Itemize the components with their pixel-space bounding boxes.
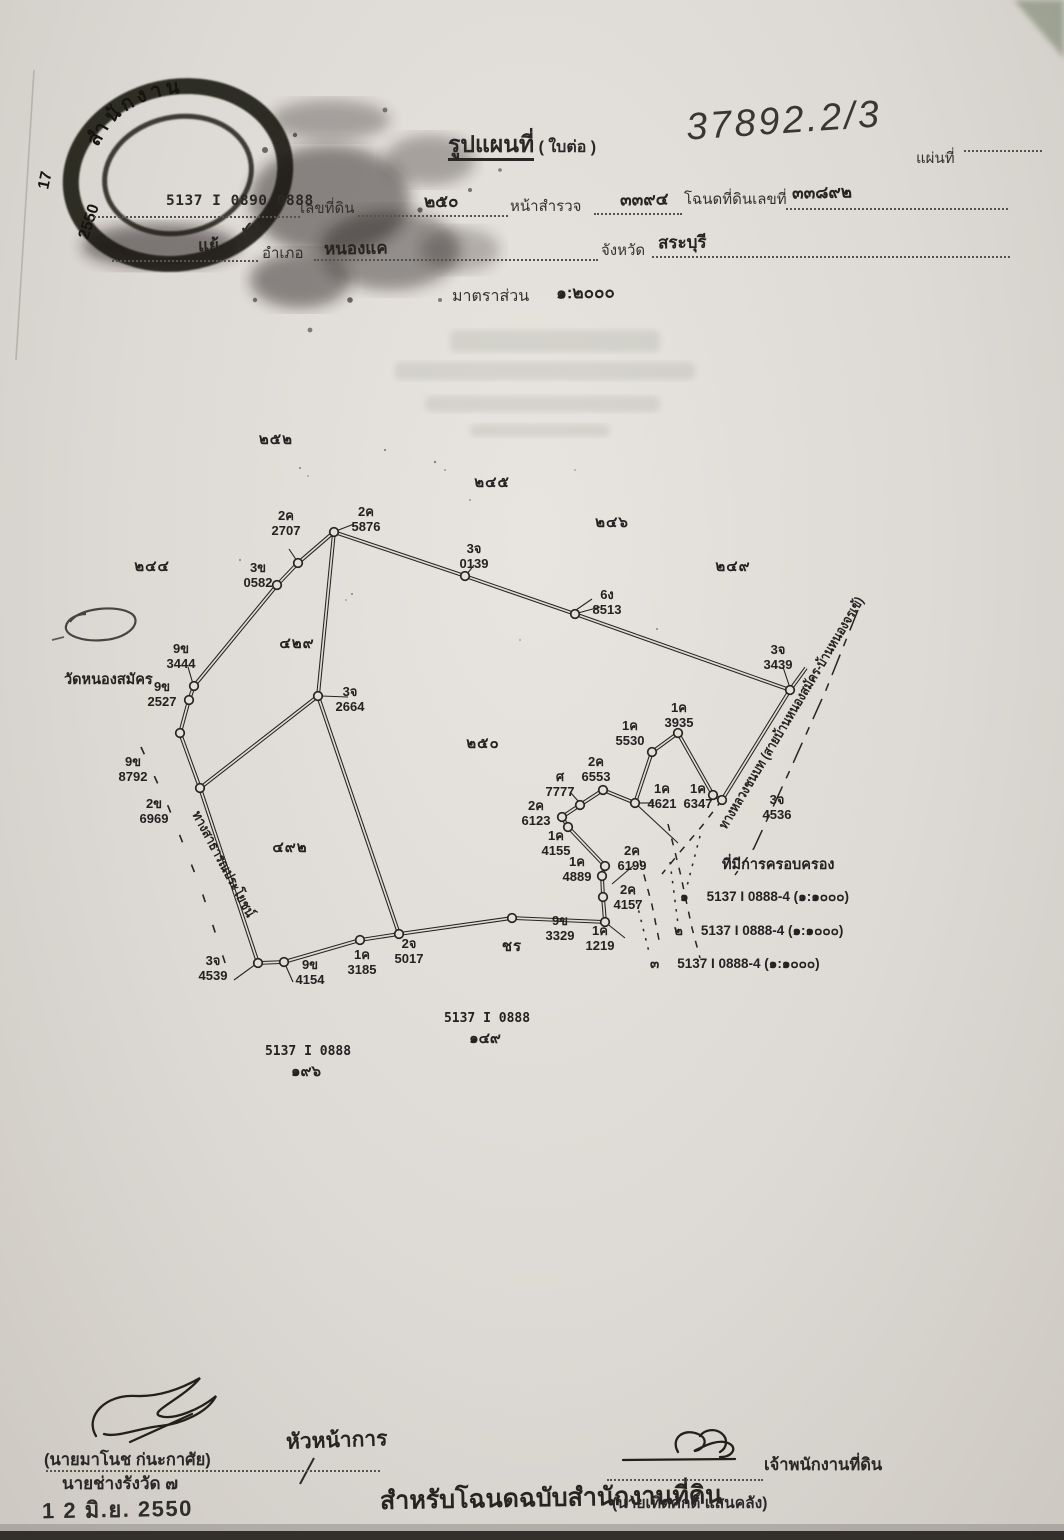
survey-point-code: 1ค (354, 947, 370, 962)
survey-point-code: 1ค (548, 828, 564, 843)
scale-value: ๑:๒๐๐๐ (556, 278, 615, 306)
survey-point-marker (280, 958, 289, 967)
title-text: รูปแผนที่ (448, 131, 534, 161)
survey-point-code: 1ค (671, 700, 687, 715)
survey-page-value: ๓๓๙๔ (620, 186, 669, 214)
survey-point-marker (648, 748, 657, 757)
leader-line (234, 964, 256, 980)
survey-point-code: 2ค (624, 843, 640, 858)
claim-item-number: ๒ (674, 923, 683, 938)
survey-point-number: 6969 (140, 811, 169, 826)
survey-point-code: 1ค (654, 781, 670, 796)
claim-item-text: 5137 I 0888-4 (๑:๑๐๐๐) (677, 956, 819, 971)
survey-point-number: 6199 (618, 858, 647, 873)
dotted-rule (112, 260, 258, 262)
survey-point-code: 6ง (600, 587, 614, 602)
claim-list-item: ๒5137 I 0888-4 (๑:๑๐๐๐) (674, 923, 843, 938)
parcel-number-label: ชร (502, 938, 522, 955)
survey-point-number: 0582 (244, 575, 273, 590)
dotted-rule (964, 150, 1042, 152)
survey-point-number: 8792 (119, 769, 148, 784)
claim-item-number: ๓ (650, 956, 659, 971)
survey-point-number: 4536 (763, 807, 792, 822)
survey-point-code: 2ค (620, 882, 636, 897)
page-title: รูปแผนที่ ( ใบต่อ ) (448, 127, 596, 163)
survey-point-number: 6347 (684, 796, 713, 811)
dotted-rule (652, 256, 1010, 258)
survey-point-number: 5530 (616, 733, 645, 748)
survey-point-marker (718, 796, 727, 805)
survey-point-marker (356, 936, 365, 945)
parcel-number-label: ๒๕๐ (466, 735, 499, 752)
survey-point-number: 6553 (582, 769, 611, 784)
survey-point-number: 3185 (348, 962, 377, 977)
rural-road-label: ทางหลวงชนบท (สายบ้านหนองสมัคร-บ้านหนองจร… (716, 594, 867, 831)
survey-point-marker (571, 610, 580, 619)
survey-point-code: 9ข (302, 957, 318, 972)
survey-point-code: 3จ (206, 953, 221, 968)
survey-point-marker (330, 528, 339, 537)
survey-point-marker (314, 692, 323, 701)
scale-label: มาตราส่วน (452, 284, 529, 309)
survey-point-number: 4889 (563, 869, 592, 884)
survey-point-marker (190, 682, 199, 691)
survey-point-marker (185, 696, 194, 705)
survey-point-code: 1ค (569, 854, 585, 869)
district-label: อำเภอ (262, 241, 303, 265)
survey-point-code: 9ข (552, 913, 568, 928)
province-value: สระบุรี (658, 229, 707, 257)
boundary-line-core (562, 733, 722, 922)
boundary-line-core (200, 532, 334, 788)
survey-point-marker (294, 559, 303, 568)
survey-point-code: 3จ (770, 792, 785, 807)
leader-line (576, 599, 592, 610)
province-label: จังหวัด (601, 238, 645, 262)
survey-point-code: 1ค (592, 923, 608, 938)
survey-point-number: 4157 (614, 897, 643, 912)
parcel-number-label: ๒๔๔ (134, 558, 170, 575)
claim-list-item: ๓5137 I 0888-4 (๑:๑๐๐๐) (650, 956, 820, 971)
scanned-survey-document: สำนักงาน 2550 17 (0, 0, 1064, 1540)
survey-point-code: 2ค (278, 508, 294, 523)
dashed-boundary-line (735, 610, 858, 875)
survey-page-label: หน้าสำรวจ (510, 194, 581, 218)
claim-item-text: 5137 I 0888-4 (๑:๑๐๐๐) (707, 889, 849, 904)
survey-point-number: 3329 (546, 928, 575, 943)
deed-no-value: ๓๓๘๙๒ (792, 178, 852, 206)
approver-role-handwritten: หัวหน้าการ (285, 1422, 388, 1459)
boundary-line (562, 733, 722, 922)
sheet-reference-code: 5137 I 0888 (265, 1044, 351, 1059)
survey-point-number: 2527 (148, 694, 177, 709)
district-value: หนองแค (324, 234, 388, 262)
survey-point-marker (176, 729, 185, 738)
subdistrict-value: แย้ (198, 232, 219, 259)
dotted-rule (94, 216, 300, 218)
survey-point-number: 6123 (522, 813, 551, 828)
survey-point-code: 3จ (467, 541, 482, 556)
parcel-number-label: ๒๕๒ (259, 431, 293, 448)
survey-point-code: ศ (556, 769, 565, 784)
survey-point-number: 2707 (272, 523, 301, 538)
dotted-rule (594, 213, 682, 215)
dotted-rule (786, 208, 1008, 210)
survey-point-number: 8513 (593, 602, 622, 617)
survey-point-marker (598, 872, 607, 881)
survey-point-marker (558, 813, 567, 822)
temple-label: วัดหนองสมัคร (64, 672, 153, 688)
survey-point-code: 2จ (402, 936, 417, 951)
boundary-line-core (180, 532, 334, 963)
survey-point-code: 2ค (528, 798, 544, 813)
claim-item-text: 5137 I 0888-4 (๑:๑๐๐๐) (701, 923, 843, 938)
sheet-reference-number: ๑๙๖ (291, 1063, 322, 1080)
survey-point-marker (273, 581, 282, 590)
date-stamp: 1 2 มิ.ย. 2550 (42, 1491, 193, 1529)
deed-no-label: โฉนดที่ดินเลขที่ (684, 187, 787, 211)
survey-point-number: 3935 (665, 715, 694, 730)
parcel-no-value: ๒๕๐ (424, 188, 459, 216)
survey-point-code: 3จ (771, 642, 786, 657)
survey-point-code: 2ค (358, 504, 374, 519)
sheet-reference-number: ๑๔๙ (469, 1030, 501, 1047)
parcel-number-label: ๒๔๕ (474, 474, 510, 491)
survey-point-marker (196, 784, 205, 793)
survey-point-code: 9ข (154, 679, 170, 694)
survey-point-code: 3ข (250, 560, 266, 575)
survey-point-number: 3444 (167, 656, 197, 671)
survey-point-code: 2ข (146, 796, 162, 811)
right-signer-name: (นายเทิดศักดิ์ แสนคลัง) (612, 1490, 767, 1515)
survey-point-number: 7777 (546, 784, 575, 799)
survey-point-code: 1ค (622, 718, 638, 733)
survey-point-number: 4621 (648, 796, 677, 811)
dotted-rule (358, 215, 508, 217)
sheet-no-label: แผ่นที่ (916, 146, 955, 170)
dashed-boundary-line (686, 836, 700, 890)
public-road-label: ทางสาธารณประโยชน์ (189, 807, 260, 920)
survey-point-marker (601, 862, 610, 871)
claim-item-number: ๑ (680, 889, 689, 904)
survey-point-code: 1ค (690, 781, 706, 796)
boundary-line-core (318, 696, 399, 934)
survey-map: 2ค27072ค58763จ01393ข05826ง85139ข34449ข25… (0, 0, 1064, 1540)
survey-point-code: 3จ (343, 684, 358, 699)
survey-point-marker (786, 686, 795, 695)
survey-point-marker (254, 959, 263, 968)
sheet-reference-code: 5137 I 0888 (444, 1011, 530, 1026)
survey-point-marker (461, 572, 470, 581)
survey-point-marker (599, 786, 608, 795)
check-mark: ✓ (240, 218, 253, 238)
survey-point-code: 2ค (588, 754, 604, 769)
survey-point-marker (564, 823, 573, 832)
boundary-line (200, 532, 334, 788)
survey-point-code: 9ข (125, 754, 141, 769)
possession-label: ที่มีการครอบครอง (722, 853, 835, 873)
survey-point-number: 4154 (296, 972, 326, 987)
boundary-line (180, 532, 334, 963)
survey-point-marker (508, 914, 517, 923)
parcel-number-label: ๒๔๖ (595, 514, 629, 531)
claim-list-item: ๑5137 I 0888-4 (๑:๑๐๐๐) (680, 889, 849, 904)
survey-point-code: 9ข (173, 641, 189, 656)
survey-point-number: 5876 (352, 519, 381, 534)
dashed-boundary-line (670, 862, 678, 924)
parcel-number-label: ๒๔๙ (715, 558, 750, 575)
parcel-number-label: ๔๒๙ (279, 635, 314, 652)
leader-line (285, 964, 293, 982)
title-paren: ( ใบต่อ ) (539, 139, 597, 156)
dotted-rule (607, 1479, 763, 1481)
map-sheet-code: 5137 I 0890 0888 (166, 193, 314, 209)
survey-point-number: 4155 (542, 843, 571, 858)
parcel-no-label: เลขที่ดิน (300, 196, 354, 220)
survey-point-marker (599, 893, 608, 902)
survey-point-number: 0139 (460, 556, 489, 571)
survey-point-marker (576, 801, 585, 810)
right-signer-title: เจ้าพนักงานที่ดิน (764, 1452, 882, 1478)
survey-point-number: 3439 (764, 657, 793, 672)
parcel-number-label: ๔๙๒ (272, 839, 307, 856)
survey-point-number: 4539 (199, 968, 228, 983)
survey-point-number: 2664 (336, 699, 366, 714)
survey-point-marker (631, 799, 640, 808)
survey-point-number: 1219 (586, 938, 615, 953)
survey-point-number: 5017 (395, 951, 424, 966)
